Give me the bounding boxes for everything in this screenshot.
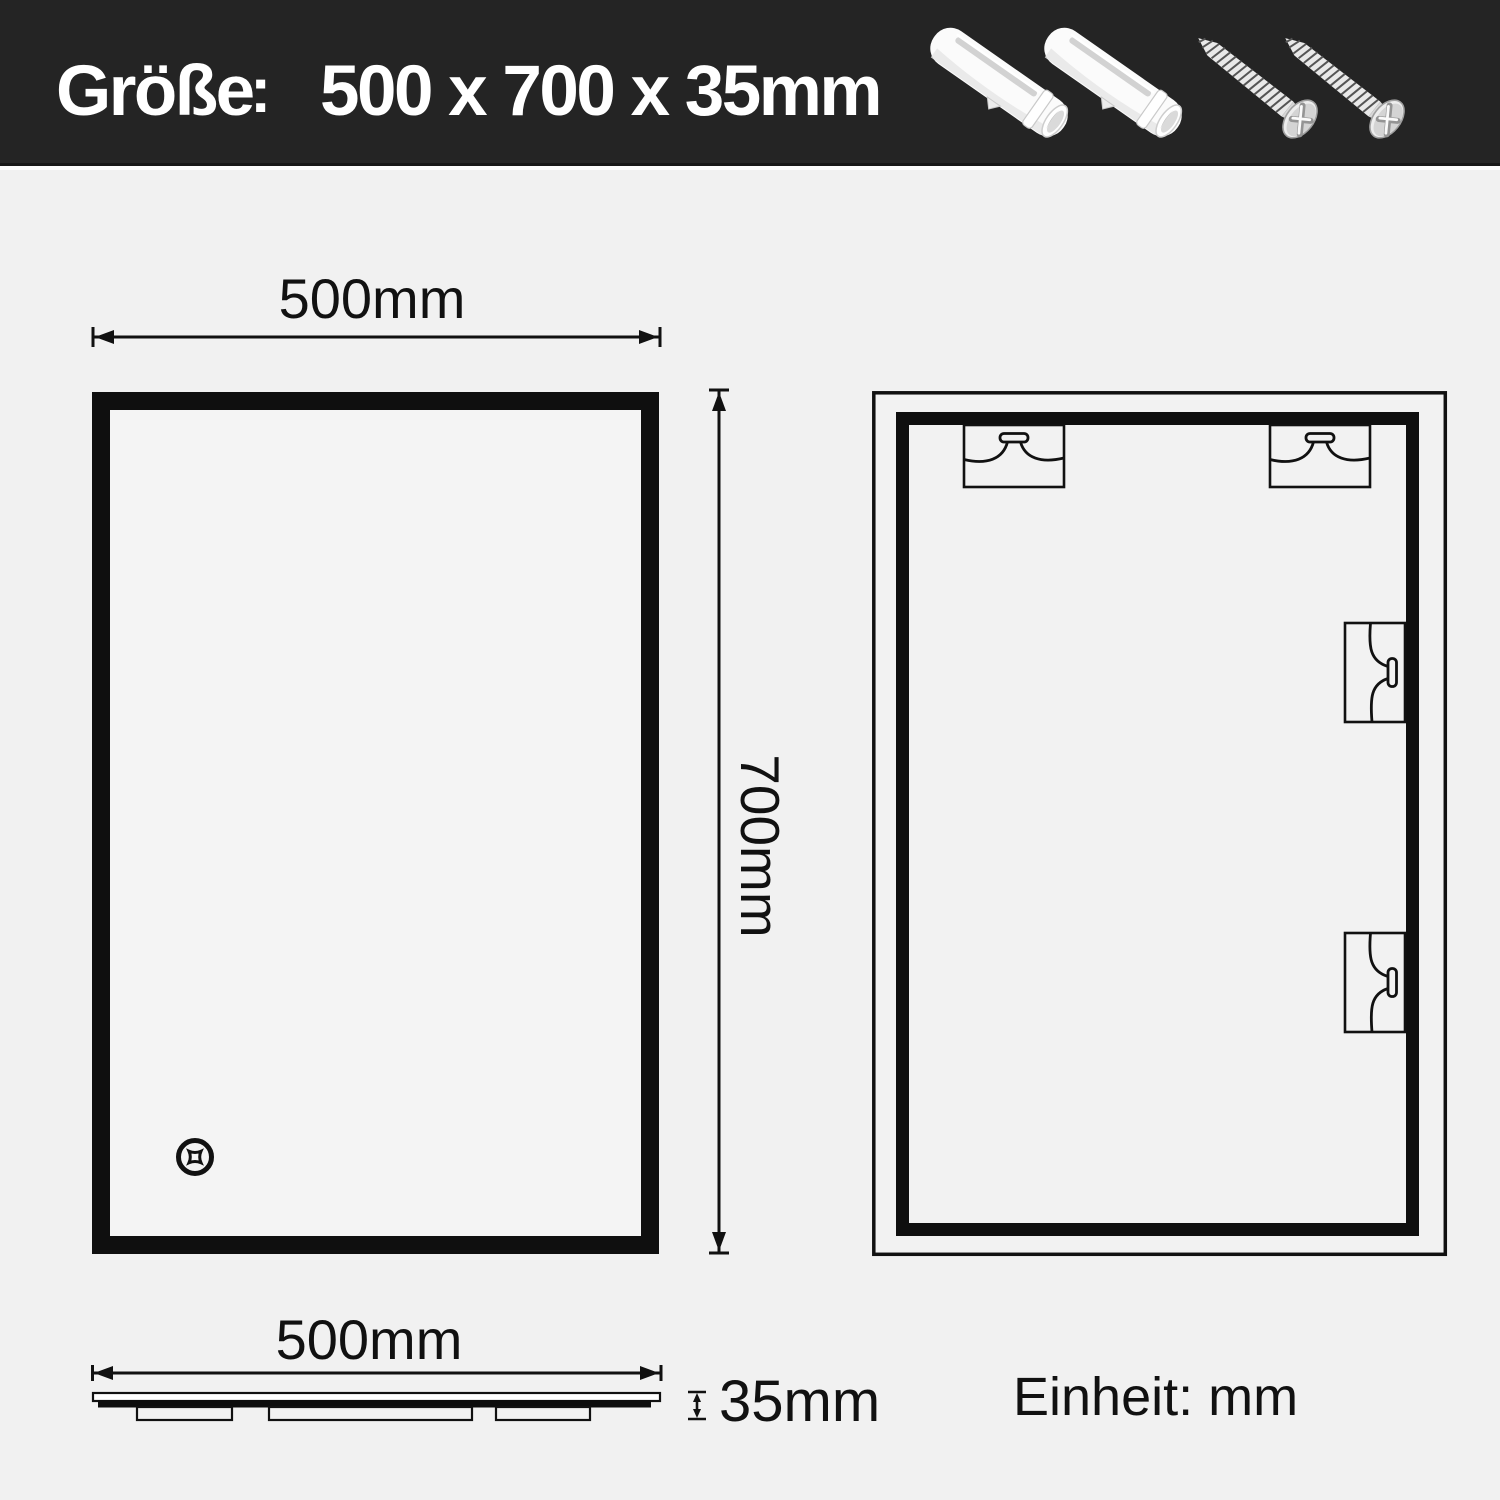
svg-text::: : — [250, 54, 271, 126]
svg-text:500mm: 500mm — [279, 267, 466, 330]
svg-text:500mm: 500mm — [276, 1308, 463, 1371]
svg-text:Größe: Größe — [56, 52, 254, 131]
svg-text:700mm: 700mm — [729, 754, 791, 937]
svg-text:Einheit: mm: Einheit: mm — [1013, 1367, 1298, 1427]
svg-text:500 x 700 x 35mm: 500 x 700 x 35mm — [320, 52, 880, 131]
svg-text:35mm: 35mm — [719, 1369, 880, 1434]
